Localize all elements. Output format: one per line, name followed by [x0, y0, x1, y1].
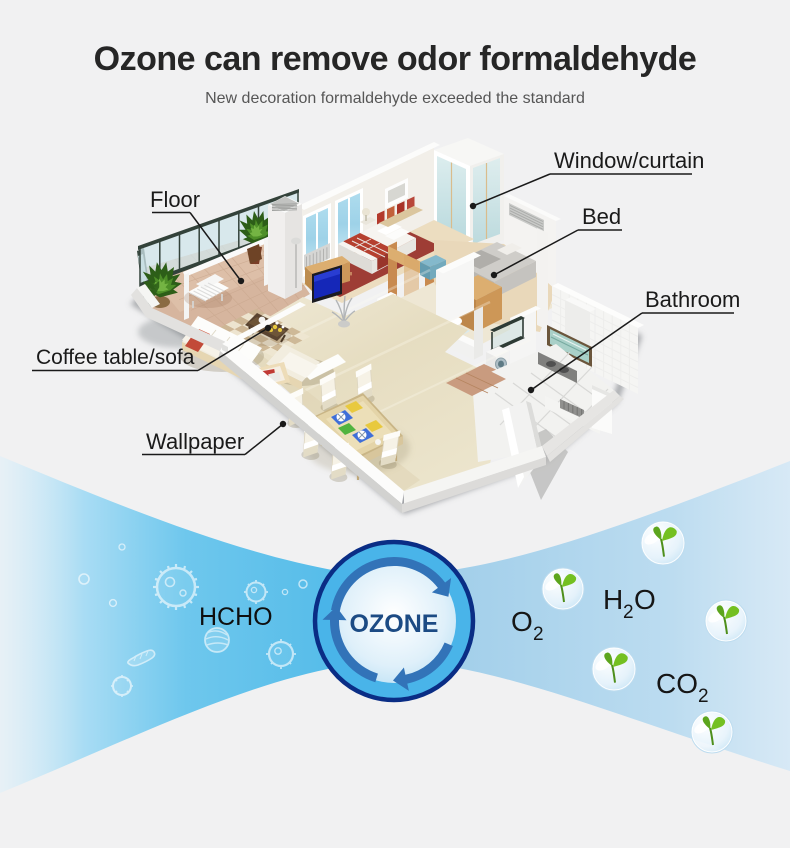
svg-text:Coffee table/sofa: Coffee table/sofa — [36, 346, 195, 369]
svg-text:Bed: Bed — [582, 204, 621, 229]
svg-text:Wallpaper: Wallpaper — [146, 429, 244, 454]
svg-text:Floor: Floor — [150, 187, 200, 212]
svg-text:Window/curtain: Window/curtain — [554, 148, 704, 173]
svg-text:Bathroom: Bathroom — [645, 287, 740, 312]
